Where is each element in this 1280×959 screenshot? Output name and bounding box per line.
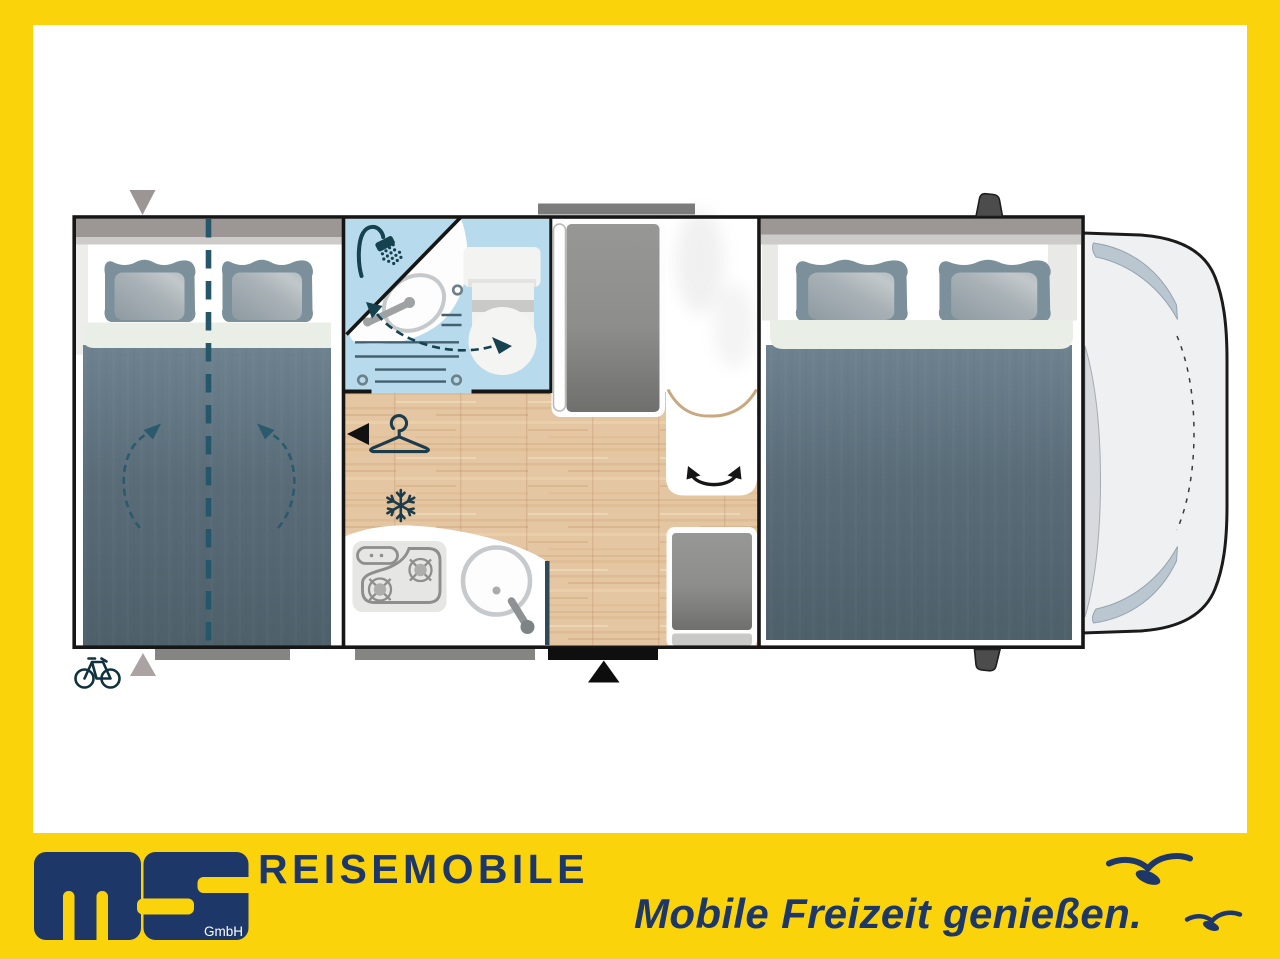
svg-text:Mobile Freizeit genießen.: Mobile Freizeit genießen. [634, 890, 1142, 937]
svg-text:GmbH: GmbH [204, 924, 243, 939]
svg-text:REISEMOBILE: REISEMOBILE [258, 846, 589, 892]
